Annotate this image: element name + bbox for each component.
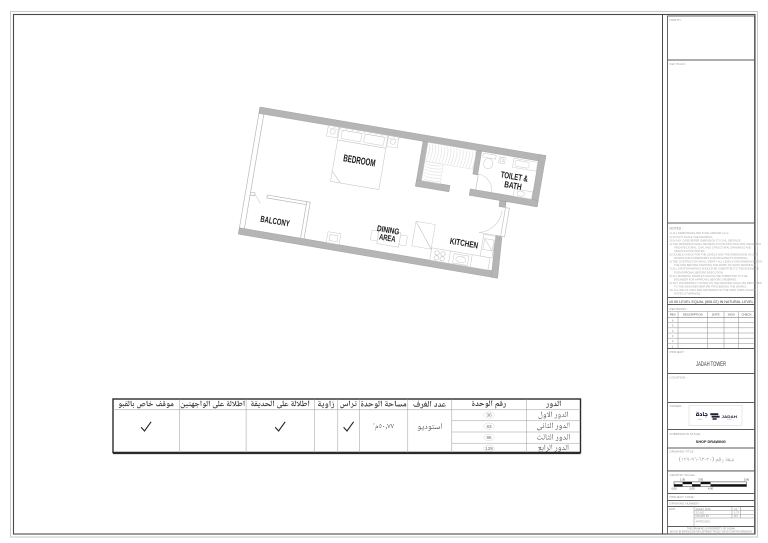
svg-text:6: 6 bbox=[672, 319, 674, 323]
svg-text:4: 4 bbox=[672, 329, 674, 333]
svg-text:6) THE CONTRACTOR SHALL VERIF: 6) THE CONTRACTOR SHALL VERIFY ALL LEVEL… bbox=[670, 260, 763, 264]
svg-text:PROJECT :: PROJECT : bbox=[670, 350, 686, 354]
svg-text:3) IN ANY CASE REFER DIMENSIO: 3) IN ANY CASE REFER DIMENSION TO CIVIL … bbox=[670, 238, 742, 242]
svg-text:ENGINEER FOR APPROVAL BEFORE O: ENGINEER FOR APPROVAL BEFORE ORDERING. bbox=[674, 277, 737, 281]
svg-text:DRAWN BY :: DRAWN BY : bbox=[696, 514, 712, 518]
svg-text:PROJECT CODE :: PROJECT CODE : bbox=[670, 495, 696, 499]
svg-text:WORKS AND FORMWORKS FOR ARCHIT: WORKS AND FORMWORKS FOR ARCHITECTS WORKI… bbox=[674, 256, 748, 260]
svg-text:BATH: BATH bbox=[504, 179, 523, 192]
svg-text:TO THE DESIGNER BEFORE PROCEED: TO THE DESIGNER BEFORE PROCEEDING THE WO… bbox=[674, 285, 747, 289]
svg-text:APPROVED :: APPROVED : bbox=[696, 519, 712, 523]
svg-text:NORTH :: NORTH : bbox=[670, 18, 683, 22]
svg-text:3.00: 3.00 bbox=[698, 477, 704, 481]
svg-text:DRAWING TITLE :: DRAWING TITLE : bbox=[670, 450, 696, 454]
svg-text:SCALE :: SCALE : bbox=[696, 511, 706, 515]
svg-text:NOTED OTHERWISE.: NOTED OTHERWISE. bbox=[674, 292, 701, 296]
svg-text:3: 3 bbox=[672, 334, 674, 338]
svg-text:FOR APPROVAL BEFORE EXECUTION.: FOR APPROVAL BEFORE EXECUTION. bbox=[674, 270, 724, 274]
svg-text:SHEET SIZE :: SHEET SIZE : bbox=[696, 507, 713, 511]
svg-text:MAY NOT BE REPRODUCED FOR A DI: MAY NOT BE REPRODUCED FOR A DIFFERENT PR… bbox=[670, 531, 752, 534]
svg-text:2: 2 bbox=[672, 339, 674, 343]
svg-text:11) ALL WALLS AXES ARE CENTERE: 11) ALL WALLS AXES ARE CENTERED ON THE G… bbox=[670, 288, 757, 292]
svg-text:5) DOUBLE CHECK FOR THE LEVEL: 5) DOUBLE CHECK FOR THE LEVELS AND THE D… bbox=[670, 253, 759, 257]
svg-text:REVISIONS :: REVISIONS : bbox=[670, 307, 689, 311]
svg-text:1) ALL DIMENSIONS ARE IN MILL: 1) ALL DIMENSIONS ARE IN MILLIMETER (mm)… bbox=[670, 231, 730, 235]
svg-text:4.00: 4.00 bbox=[708, 487, 714, 491]
svg-text:NOTES :: NOTES : bbox=[670, 227, 684, 231]
svg-text:MS: MS bbox=[734, 514, 738, 518]
svg-text:2.00: 2.00 bbox=[689, 487, 695, 491]
svg-text:8) ALL MATERIAL SAMPLES SHOUL: 8) ALL MATERIAL SAMPLES SHOULD BE SUBMIT… bbox=[670, 274, 748, 278]
svg-text:±0.00 LEVEL EQUAL (606.02) IN: ±0.00 LEVEL EQUAL (606.02) IN NATURAL LE… bbox=[669, 300, 754, 304]
svg-text:DATE: DATE bbox=[712, 313, 720, 317]
svg-text:KEY PLAN :: KEY PLAN : bbox=[670, 62, 687, 66]
svg-text:63: 63 bbox=[486, 424, 492, 429]
svg-text:SUBMISSION STAGE :: SUBMISSION STAGE : bbox=[670, 432, 702, 436]
svg-text:BALCONY: BALCONY bbox=[260, 214, 291, 229]
svg-text:30: 30 bbox=[486, 413, 492, 418]
svg-text:0.00: 0.00 bbox=[671, 487, 677, 491]
svg-text:REV: REV bbox=[670, 313, 676, 317]
svg-text:1: 1 bbox=[672, 344, 674, 348]
svg-text:CHECK: CHECK bbox=[741, 313, 751, 317]
svg-text:THE SITE BEFORE STARTING THE W: THE SITE BEFORE STARTING THE WORK OF SHO… bbox=[674, 263, 756, 267]
svg-text:DRAWING NUMBER :: DRAWING NUMBER : bbox=[670, 501, 701, 505]
svg-text:4) THE DRAWINGS SHALL BE READ: 4) THE DRAWINGS SHALL BE READ IN CONJUNC… bbox=[670, 242, 762, 246]
svg-text:LOCATION :: LOCATION : bbox=[670, 376, 687, 380]
svg-text:DESCRIPTION: DESCRIPTION bbox=[683, 313, 703, 317]
svg-text:DWN: DWN bbox=[669, 507, 675, 511]
svg-text:96: 96 bbox=[486, 435, 492, 440]
svg-text:7) ALL SHOP DRAWINGS SHOULD B: 7) ALL SHOP DRAWINGS SHOULD BE SUBMITTED… bbox=[670, 267, 759, 271]
svg-text:ARCHITECTURAL, CIVIL AND STRUC: ARCHITECTURAL, CIVIL AND STRUCTURAL DRAW… bbox=[674, 245, 751, 249]
svg-text:5: 5 bbox=[672, 324, 674, 328]
svg-text:KITCHEN: KITCHEN bbox=[449, 236, 479, 251]
svg-text:SHOP DRAWING: SHOP DRAWING bbox=[696, 440, 726, 444]
svg-text:SPECIFICATION NOTES.: SPECIFICATION NOTES. bbox=[674, 249, 705, 253]
svg-text:9) ANY DISCREPANCY NOTED ON T: 9) ANY DISCREPANCY NOTED ON THE DRAWING … bbox=[670, 281, 762, 285]
svg-text:2) DO NOT SCALE THE DRAWING.: 2) DO NOT SCALE THE DRAWING. bbox=[670, 235, 714, 239]
svg-text:JADAH TOWER: JADAH TOWER bbox=[696, 362, 726, 368]
svg-text:1:75: 1:75 bbox=[734, 511, 740, 515]
svg-text:SIGN: SIGN bbox=[728, 313, 735, 317]
svg-text:A3: A3 bbox=[734, 507, 738, 511]
svg-text:GRAPHIC SCALE :: GRAPHIC SCALE : bbox=[670, 473, 697, 477]
svg-text:129: 129 bbox=[485, 446, 493, 451]
svg-text:1.00: 1.00 bbox=[680, 477, 686, 481]
svg-text:OWNER :: OWNER : bbox=[670, 404, 684, 408]
svg-text:5.00: 5.00 bbox=[744, 477, 750, 481]
svg-text:JADAH: JADAH bbox=[722, 415, 738, 419]
